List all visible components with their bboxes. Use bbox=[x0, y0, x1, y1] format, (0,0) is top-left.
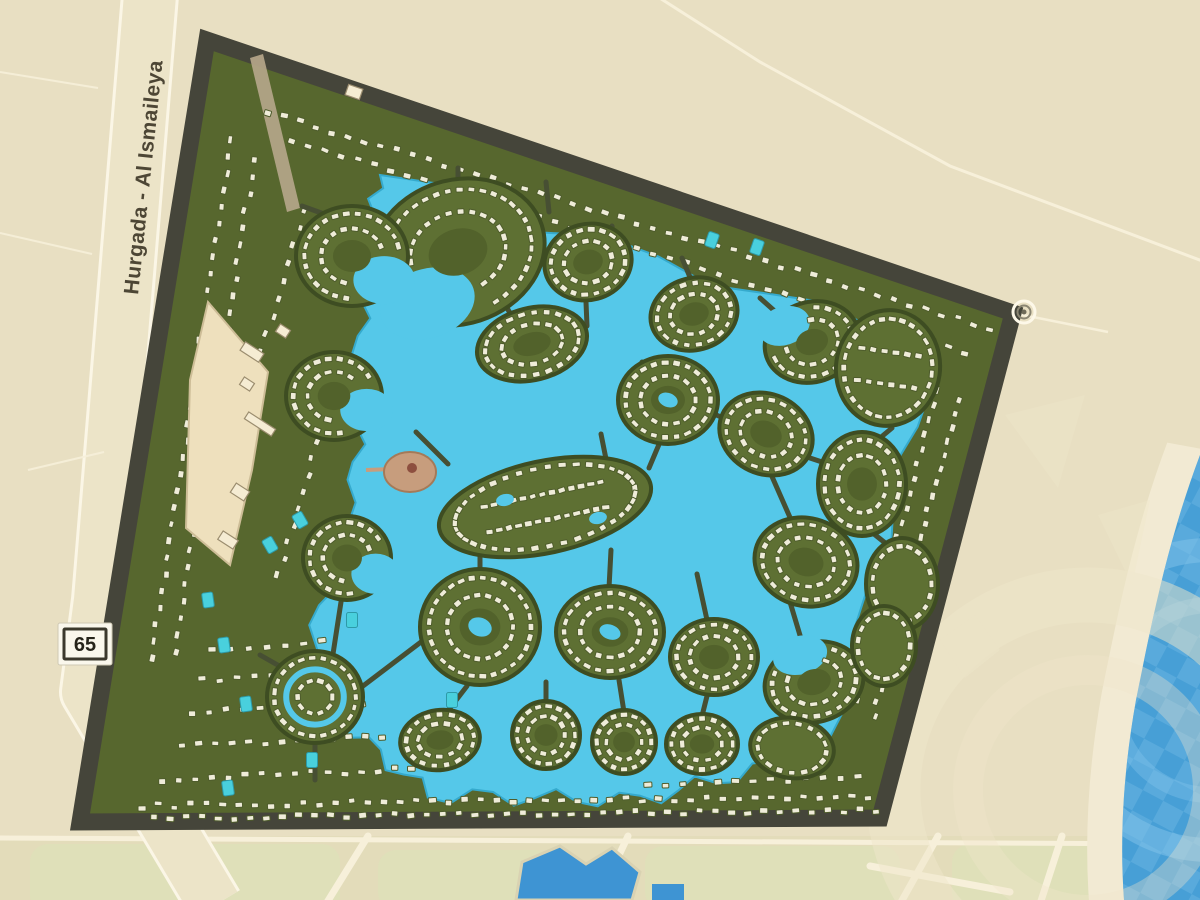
island bbox=[852, 606, 916, 686]
island bbox=[512, 701, 580, 769]
route-badge: 65 bbox=[58, 623, 112, 665]
route-badge-number: 65 bbox=[74, 634, 96, 656]
island bbox=[818, 432, 906, 536]
island bbox=[670, 619, 758, 695]
island bbox=[420, 569, 540, 685]
island bbox=[267, 651, 363, 743]
island bbox=[556, 586, 664, 678]
master-plan-map: Hurgada - Al Ismaileya 65 bbox=[0, 0, 1200, 900]
island bbox=[592, 710, 656, 774]
island bbox=[618, 356, 718, 444]
island bbox=[666, 714, 738, 774]
